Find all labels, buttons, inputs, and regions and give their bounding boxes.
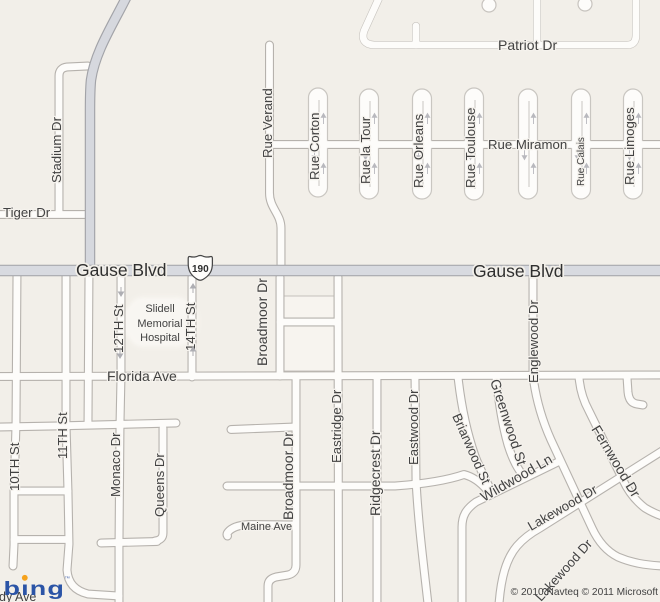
svg-text:Memorial: Memorial xyxy=(137,318,182,330)
svg-text:Rue Miramon: Rue Miramon xyxy=(488,137,567,152)
svg-text:Rue Toulouse: Rue Toulouse xyxy=(463,108,478,188)
svg-text:Gause Blvd: Gause Blvd xyxy=(76,260,166,280)
svg-text:10TH St: 10TH St xyxy=(7,442,22,491)
svg-text:Rue Limoges: Rue Limoges xyxy=(622,107,637,185)
svg-text:Rue la Tour: Rue la Tour xyxy=(358,116,373,184)
svg-text:Broadmoor Dr: Broadmoor Dr xyxy=(254,278,270,366)
svg-text:Maine Ave: Maine Ave xyxy=(241,521,292,533)
svg-text:Eastwood Dr: Eastwood Dr xyxy=(406,389,421,465)
svg-text:Queens Dr: Queens Dr xyxy=(152,453,167,517)
svg-text:™: ™ xyxy=(65,576,71,582)
svg-text:12TH St: 12TH St xyxy=(111,304,126,353)
svg-text:14TH St: 14TH St xyxy=(183,302,198,351)
svg-text:Gause Blvd: Gause Blvd xyxy=(473,261,563,281)
svg-text:Florida Ave: Florida Ave xyxy=(107,368,177,384)
svg-text:Ridgecrest Dr: Ridgecrest Dr xyxy=(367,430,383,516)
svg-text:Rue Orleans: Rue Orleans xyxy=(411,114,426,188)
svg-text:Tiger Dr: Tiger Dr xyxy=(3,205,51,220)
svg-text:Eastridge Dr: Eastridge Dr xyxy=(329,389,344,463)
svg-text:Monaco Dr: Monaco Dr xyxy=(108,432,123,497)
svg-text:Englewood Dr: Englewood Dr xyxy=(526,300,541,383)
svg-text:Rue Calais: Rue Calais xyxy=(576,137,587,186)
svg-text:Rue Verand: Rue Verand xyxy=(260,88,275,158)
svg-text:Broadmoor Dr: Broadmoor Dr xyxy=(280,432,296,520)
svg-text:Slidell: Slidell xyxy=(145,303,174,315)
svg-text:Patriot Dr: Patriot Dr xyxy=(498,37,557,53)
svg-text:bıng: bıng xyxy=(4,578,65,599)
svg-text:Hospital: Hospital xyxy=(140,332,180,344)
svg-text:Stadium Dr: Stadium Dr xyxy=(49,116,64,183)
svg-text:11TH St: 11TH St xyxy=(55,412,70,459)
svg-text:Rue Corton: Rue Corton xyxy=(307,113,322,180)
svg-text:© 2010 Navteq © 2011 Microsoft: © 2010 Navteq © 2011 Microsoft xyxy=(511,587,659,598)
svg-text:190: 190 xyxy=(192,264,209,275)
